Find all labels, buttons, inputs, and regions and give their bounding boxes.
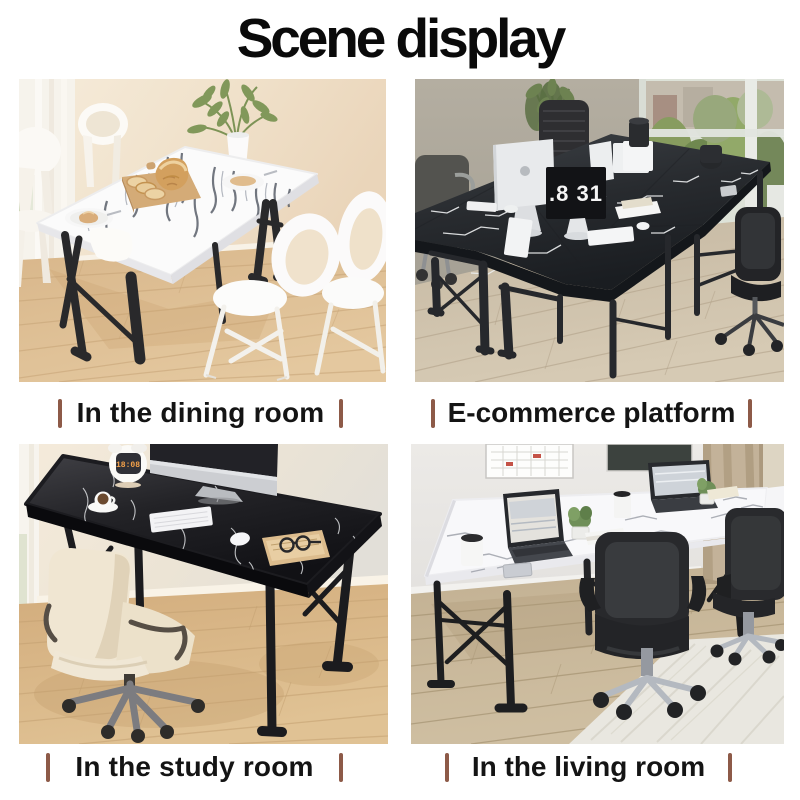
svg-text:.8 31: .8 31 (549, 181, 603, 206)
svg-text:18:08: 18:08 (116, 461, 140, 470)
